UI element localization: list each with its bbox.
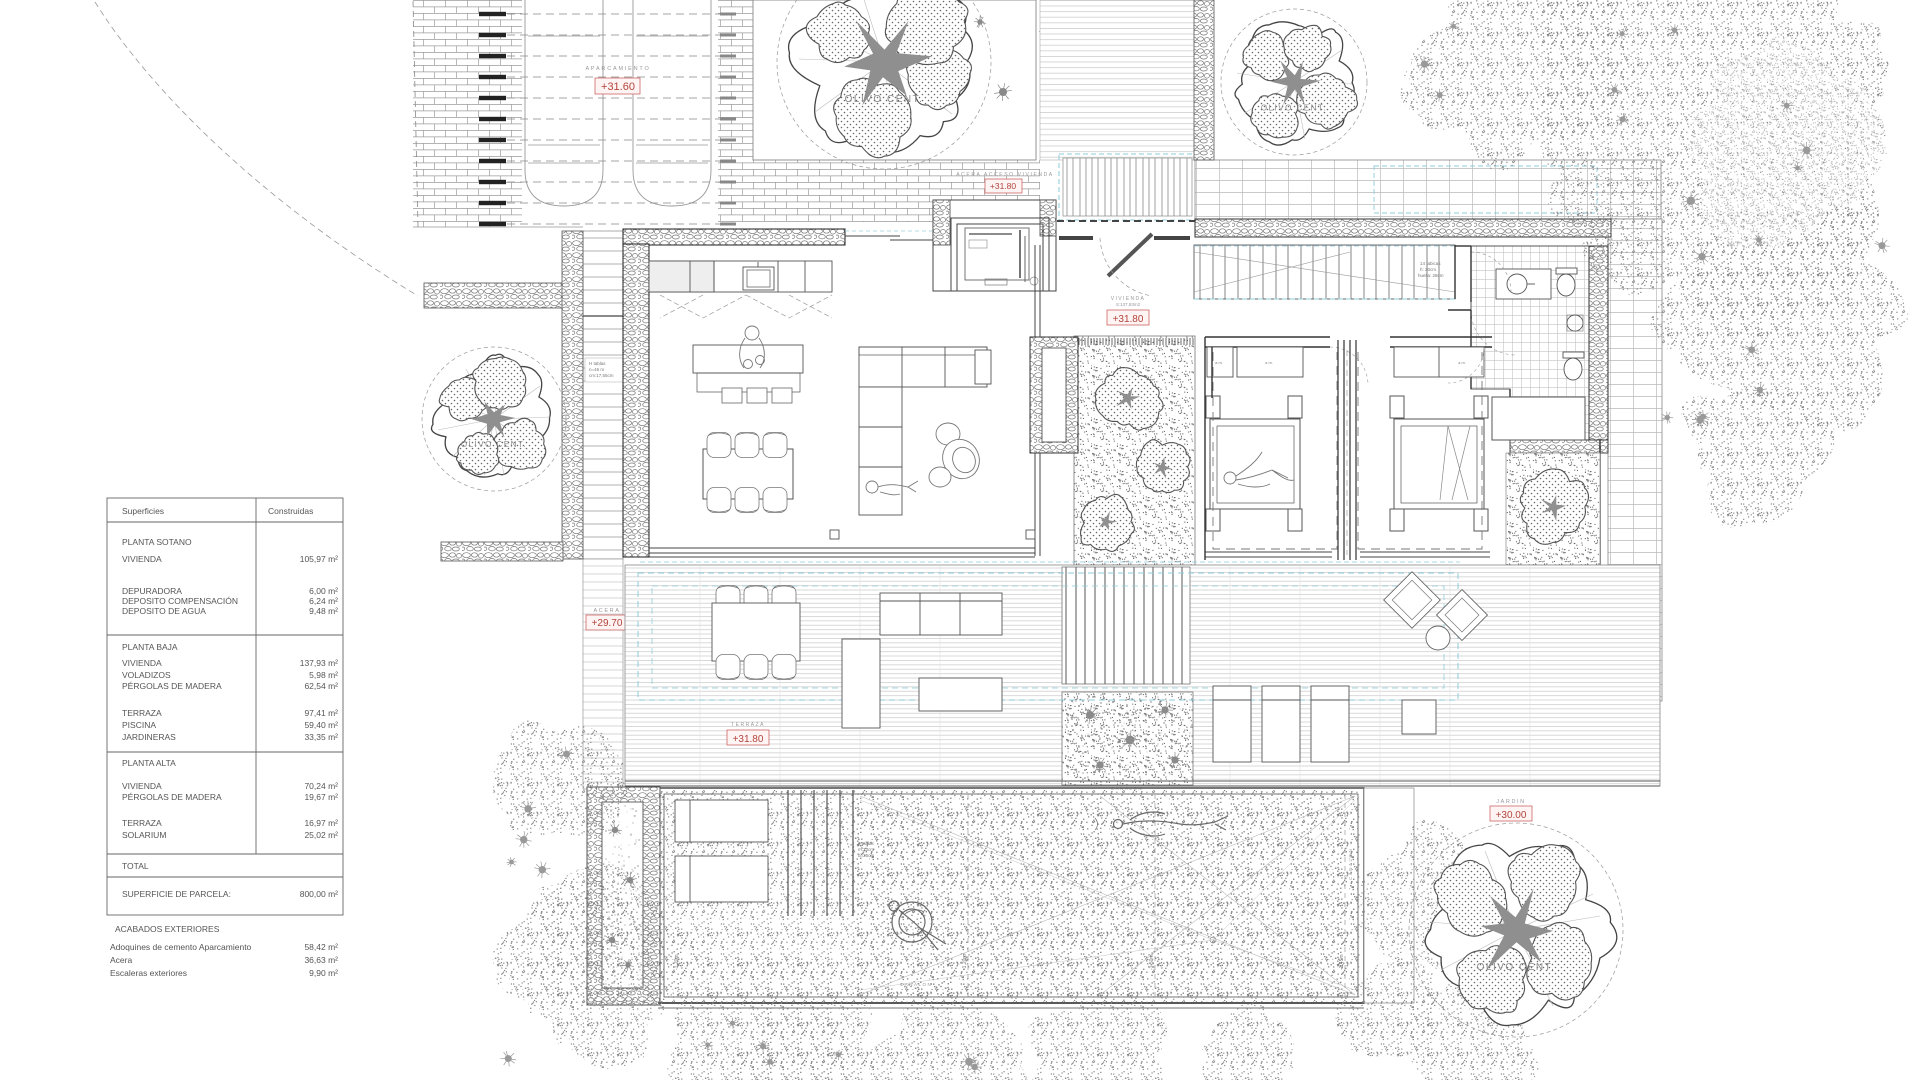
svg-text:14 tabicas: 14 tabicas (1420, 261, 1441, 266)
svg-text:ACERA ACCESO VIVIENDA: ACERA ACCESO VIVIENDA (956, 172, 1054, 178)
svg-text:DEPOSITO DE AGUA: DEPOSITO DE AGUA (122, 606, 206, 616)
svg-text:VOLADIZOS: VOLADIZOS (122, 670, 171, 680)
svg-text:19,67 m²: 19,67 m² (304, 792, 338, 802)
svg-text:CANALON: CANALON (1348, 848, 1353, 880)
svg-text:cm:17,55cm: cm:17,55cm (589, 373, 614, 378)
svg-text:OLIVO CENT.: OLIVO CENT. (1477, 962, 1556, 973)
svg-text:TERRAZA: TERRAZA (122, 818, 162, 828)
svg-text:-1,20m: -1,20m (962, 954, 968, 970)
svg-text:Construidas: Construidas (268, 506, 313, 516)
svg-text:n=46 m: n=46 m (589, 367, 604, 372)
svg-text:S:137,93m2: S:137,93m2 (1116, 302, 1141, 307)
svg-text:PLANTA ALTA: PLANTA ALTA (122, 758, 176, 768)
svg-text:m:33cm: m:33cm (858, 847, 874, 852)
svg-text:6 tablas: 6 tablas (858, 841, 875, 846)
svg-text:800,00 m²: 800,00 m² (300, 889, 338, 899)
svg-text:TERRAZA: TERRAZA (122, 708, 162, 718)
svg-text:6,24 m²: 6,24 m² (309, 596, 338, 606)
svg-text:62,54 m²: 62,54 m² (304, 681, 338, 691)
svg-text:Acera: Acera (110, 955, 132, 965)
svg-text:58,42 m²: 58,42 m² (304, 942, 338, 952)
svg-text:JARDIN: JARDIN (1496, 799, 1525, 805)
svg-text:36,63 m²: 36,63 m² (304, 955, 338, 965)
svg-text:6,00 m²: 6,00 m² (309, 586, 338, 596)
svg-text:VIVIENDA: VIVIENDA (122, 781, 162, 791)
svg-text:PLANTA SOTANO: PLANTA SOTANO (122, 537, 192, 547)
svg-text:137,93 m²: 137,93 m² (300, 658, 338, 668)
svg-text:+31.80: +31.80 (1113, 314, 1144, 325)
svg-text:+30.00: +30.00 (1496, 810, 1527, 821)
svg-text:huella: 28cm: huella: 28cm (1418, 273, 1444, 278)
svg-text:DEPOSITO COMPENSACIÓN: DEPOSITO COMPENSACIÓN (122, 596, 238, 606)
svg-text:97,41 m²: 97,41 m² (304, 708, 338, 718)
svg-text:+31.60: +31.60 (601, 81, 635, 93)
svg-text:9,48 m²: 9,48 m² (309, 606, 338, 616)
svg-text:16,97 m²: 16,97 m² (304, 818, 338, 828)
svg-text:PÉRGOLAS DE MADERA: PÉRGOLAS DE MADERA (122, 792, 222, 802)
svg-text:h: 20cm: h: 20cm (1420, 267, 1436, 272)
svg-text:Adoquines de cemento Aparcamie: Adoquines de cemento Aparcamiento (110, 942, 252, 952)
svg-text:25,02 m²: 25,02 m² (304, 830, 338, 840)
svg-text:APARCAMIENTO: APARCAMIENTO (585, 66, 650, 72)
svg-text:TOTAL: TOTAL (122, 861, 149, 871)
svg-text:-1,50m: -1,50m (1149, 954, 1155, 970)
svg-text:JARDINERAS: JARDINERAS (122, 732, 176, 742)
svg-text:d=25cm: d=25cm (858, 853, 874, 858)
svg-text:VIVIENDA: VIVIENDA (122, 658, 162, 668)
svg-text:SUPERFICIE DE PARCELA:: SUPERFICIE DE PARCELA: (122, 889, 231, 899)
svg-text:-1,45m: -1,45m (1339, 954, 1345, 970)
svg-text:+31.80: +31.80 (990, 181, 1017, 191)
svg-text:9,90 m²: 9,90 m² (309, 968, 338, 978)
svg-text:OLIVO CENT.: OLIVO CENT. (1261, 103, 1327, 112)
svg-text:a.m.: a.m. (1215, 360, 1223, 365)
svg-text:VIVIENDA: VIVIENDA (122, 554, 162, 564)
svg-text:+29.70: +29.70 (592, 618, 623, 629)
svg-text:a.m.: a.m. (1265, 360, 1273, 365)
svg-text:DEPURADORA: DEPURADORA (122, 586, 182, 596)
svg-text:PISCINA: PISCINA (122, 720, 156, 730)
svg-text:70,24 m²: 70,24 m² (304, 781, 338, 791)
svg-text:PLANTA BAJA: PLANTA BAJA (122, 642, 178, 652)
svg-text:SOLARIUM: SOLARIUM (122, 830, 166, 840)
svg-text:105,97 m²: 105,97 m² (300, 554, 338, 564)
svg-text:OLIVO CENT.: OLIVO CENT. (461, 440, 527, 449)
svg-text:PÉRGOLAS DE MADERA: PÉRGOLAS DE MADERA (122, 681, 222, 691)
svg-text:H tablas: H tablas (589, 361, 606, 366)
svg-text:ACERA: ACERA (594, 608, 621, 614)
svg-text:5,98 m²: 5,98 m² (309, 670, 338, 680)
svg-text:59,40 m²: 59,40 m² (304, 720, 338, 730)
svg-text:33,35 m²: 33,35 m² (304, 732, 338, 742)
svg-text:ACABADOS EXTERIORES: ACABADOS EXTERIORES (115, 924, 220, 934)
svg-text:OLIVO CENT.: OLIVO CENT. (845, 94, 924, 105)
svg-text:a.m.: a.m. (1458, 360, 1466, 365)
svg-text:TERRAZA: TERRAZA (731, 722, 765, 728)
svg-text:Superficies: Superficies (122, 506, 164, 516)
svg-text:+31.80: +31.80 (733, 734, 764, 745)
svg-text:Escaleras exteriores: Escaleras exteriores (110, 968, 187, 978)
